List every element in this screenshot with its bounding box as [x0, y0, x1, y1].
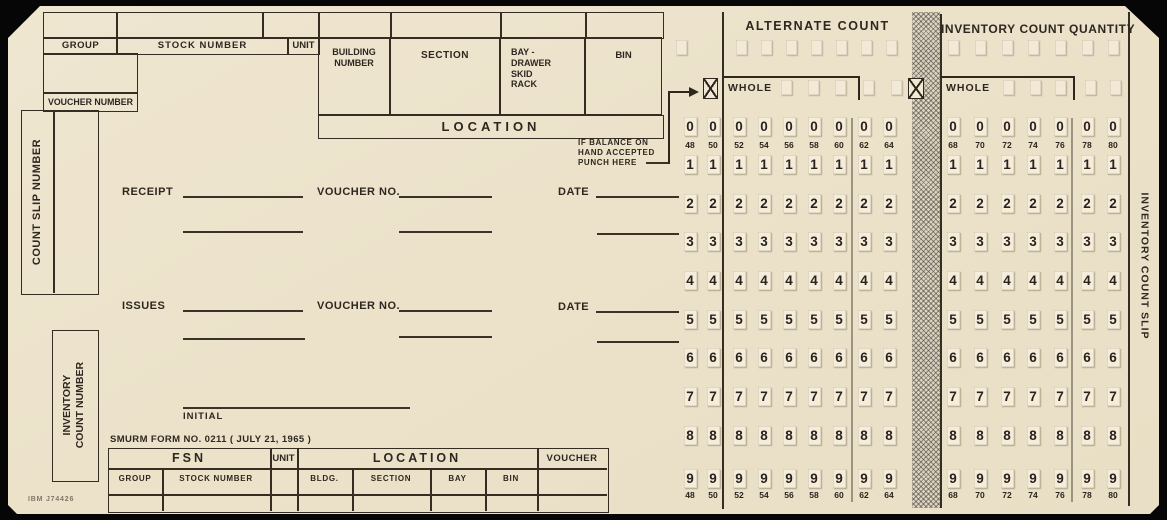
punch-digit-cell: 5: [947, 310, 960, 329]
punch-digit-cell: 1: [684, 155, 697, 174]
punch-digit-cell: 7: [1001, 387, 1014, 406]
punch-digit-cell: 4: [947, 271, 960, 290]
punch-box-empty: [811, 40, 822, 55]
punch-digit-cell: 2: [1027, 194, 1040, 213]
punch-digit-cell: 9: [974, 469, 987, 488]
punch-digit-cell: 0: [1001, 117, 1014, 136]
punch-digit-cell: 0: [758, 117, 771, 136]
punch-digit-cell: 7: [858, 387, 871, 406]
punch-digit-cell: 7: [733, 387, 746, 406]
punch-digit-cell: 3: [1027, 232, 1040, 251]
punch-digit-cell: 4: [833, 271, 846, 290]
punch-digit-cell: 6: [1027, 348, 1040, 367]
punch-digit-cell: 7: [684, 387, 697, 406]
punch-digit-cell: 1: [858, 155, 871, 174]
punch-digit-cell: 3: [733, 232, 746, 251]
punch-digit-cell: 2: [684, 194, 697, 213]
punch-box-empty: [886, 40, 897, 55]
punch-digit-cell: 9: [947, 469, 960, 488]
punch-column-number: 70: [971, 490, 989, 500]
punch-digit-cell: 9: [1107, 469, 1120, 488]
punch-digit-cell: 7: [1027, 387, 1040, 406]
punch-column-number: 68: [944, 490, 962, 500]
punch-column-number: 76: [1051, 490, 1069, 500]
punch-digit-cell: 5: [1001, 310, 1014, 329]
punch-box-empty: [836, 40, 847, 55]
punch-column-number: 74: [1024, 490, 1042, 500]
punch-column-number: 48: [681, 490, 699, 500]
punch-column-number: 68: [944, 140, 962, 150]
punch-box-empty: [861, 40, 872, 55]
punch-digit-cell: 1: [758, 155, 771, 174]
punch-digit-cell: 1: [1081, 155, 1094, 174]
punch-digit-cell: 2: [1107, 194, 1120, 213]
punch-digit-cell: 9: [808, 469, 821, 488]
punch-column-number: 60: [830, 490, 848, 500]
punch-digit-cell: 8: [1054, 426, 1067, 445]
punch-column-number: 56: [780, 490, 798, 500]
punch-digit-cell: 9: [733, 469, 746, 488]
punch-digit-cell: 0: [783, 117, 796, 136]
punch-digit-cell: 7: [833, 387, 846, 406]
punch-digit-cell: 2: [1081, 194, 1094, 213]
punch-digit-cell: 3: [758, 232, 771, 251]
punch-digit-cell: 7: [947, 387, 960, 406]
punch-box-empty: [1055, 80, 1066, 95]
punch-digit-cell: 4: [758, 271, 771, 290]
punch-digit-cell: 3: [808, 232, 821, 251]
punch-digit-cell: 5: [833, 310, 846, 329]
punch-digit-cell: 3: [1054, 232, 1067, 251]
punch-column-number: 62: [855, 490, 873, 500]
punch-digit-cell: 3: [707, 232, 720, 251]
punch-digit-cell: 7: [1107, 387, 1120, 406]
punch-digit-cell: 1: [947, 155, 960, 174]
punch-digit-cell: 7: [1081, 387, 1094, 406]
punch-digit-cell: 9: [758, 469, 771, 488]
punch-digit-cell: 4: [1107, 271, 1120, 290]
card-content: GROUP STOCK NUMBER UNIT BUILDING NUMBER …: [0, 0, 1167, 520]
punch-digit-cell: 0: [1107, 117, 1120, 136]
punch-box-empty: [761, 40, 772, 55]
punch-column-number: 54: [755, 140, 773, 150]
punch-digit-cell: 7: [707, 387, 720, 406]
punch-digit-cell: 3: [974, 232, 987, 251]
punch-digit-cell: 0: [858, 117, 871, 136]
punch-box-empty: [863, 80, 874, 95]
punch-digit-cell: 3: [1107, 232, 1120, 251]
punch-digit-cell: 0: [707, 117, 720, 136]
punch-digit-cell: 1: [833, 155, 846, 174]
punch-digit-cell: 9: [1001, 469, 1014, 488]
punch-card: GROUP STOCK NUMBER UNIT BUILDING NUMBER …: [8, 6, 1159, 514]
punch-digit-cell: 5: [783, 310, 796, 329]
punch-digit-cell: 2: [783, 194, 796, 213]
punch-digit-cell: 0: [883, 117, 896, 136]
punch-digit-cell: 5: [707, 310, 720, 329]
punch-digit-cell: 8: [783, 426, 796, 445]
punch-box-empty: [1085, 80, 1096, 95]
punch-digit-cell: 4: [883, 271, 896, 290]
punch-column-number: 72: [998, 490, 1016, 500]
punch-digit-cell: 1: [1001, 155, 1014, 174]
punch-digit-cell: 9: [858, 469, 871, 488]
punch-digit-cell: 3: [1081, 232, 1094, 251]
punch-digit-cell: 9: [883, 469, 896, 488]
punch-digit-cell: 0: [833, 117, 846, 136]
punch-digit-cell: 8: [947, 426, 960, 445]
punch-digit-cell: 6: [833, 348, 846, 367]
punch-digit-cell: 4: [733, 271, 746, 290]
punch-digit-cell: 1: [1027, 155, 1040, 174]
punch-digit-cell: 1: [733, 155, 746, 174]
punch-digit-cell: 0: [974, 117, 987, 136]
punch-digit-cell: 6: [808, 348, 821, 367]
punch-column-number: 80: [1104, 490, 1122, 500]
punch-column-number: 58: [805, 490, 823, 500]
punch-digit-cell: 8: [883, 426, 896, 445]
punch-digit-cell: 5: [733, 310, 746, 329]
punch-column-number: 52: [730, 490, 748, 500]
punch-digit-cell: 6: [707, 348, 720, 367]
punch-digit-cell: 0: [808, 117, 821, 136]
punch-digit-cell: 5: [808, 310, 821, 329]
punch-digit-cell: 8: [1107, 426, 1120, 445]
punch-box-empty: [1003, 80, 1014, 95]
punch-digit-cell: 5: [684, 310, 697, 329]
punch-digit-cell: 2: [858, 194, 871, 213]
punch-digit-cell: 2: [733, 194, 746, 213]
punch-column-number: 54: [755, 490, 773, 500]
punch-column-number: 80: [1104, 140, 1122, 150]
punch-digit-cell: 2: [758, 194, 771, 213]
punch-digit-cell: 2: [808, 194, 821, 213]
punch-digit-cell: 0: [684, 117, 697, 136]
punch-digit-cell: 1: [1054, 155, 1067, 174]
punch-box-empty: [835, 80, 846, 95]
punch-digit-cell: 4: [684, 271, 697, 290]
punch-digit-cell: 2: [883, 194, 896, 213]
punch-digit-cell: 9: [684, 469, 697, 488]
punch-column-number: 48: [681, 140, 699, 150]
punch-digit-cell: 6: [858, 348, 871, 367]
punch-digit-cell: 3: [858, 232, 871, 251]
punch-digit-cell: 3: [833, 232, 846, 251]
punch-box-empty: [948, 40, 959, 55]
punch-digit-cell: 1: [883, 155, 896, 174]
punch-box-empty: [786, 40, 797, 55]
punch-digit-cell: 8: [858, 426, 871, 445]
punch-digit-cell: 7: [974, 387, 987, 406]
punch-digit-cell: 9: [783, 469, 796, 488]
punch-digit-cell: 0: [1054, 117, 1067, 136]
punch-digit-cell: 5: [974, 310, 987, 329]
punch-digit-cell: 6: [974, 348, 987, 367]
punch-column-number: 60: [830, 140, 848, 150]
punch-digit-cell: 8: [758, 426, 771, 445]
punch-digit-cell: 9: [833, 469, 846, 488]
punch-digit-cell: 8: [733, 426, 746, 445]
punch-digit-cell: 4: [1027, 271, 1040, 290]
punch-column-number: 78: [1078, 140, 1096, 150]
punch-digit-cell: 9: [1081, 469, 1094, 488]
punch-column-number: 78: [1078, 490, 1096, 500]
punch-digit-cell: 7: [1054, 387, 1067, 406]
punch-digit-cell: 6: [1054, 348, 1067, 367]
punch-digit-cell: 7: [783, 387, 796, 406]
punch-column-number: 50: [704, 140, 722, 150]
punch-digit-cell: 5: [758, 310, 771, 329]
punch-digit-cell: 2: [947, 194, 960, 213]
punch-digit-cell: 5: [1081, 310, 1094, 329]
punch-digit-cell: 6: [1107, 348, 1120, 367]
punch-digit-cell: 3: [947, 232, 960, 251]
punch-digit-cell: 2: [833, 194, 846, 213]
punch-column-number: 74: [1024, 140, 1042, 150]
punch-digit-cell: 6: [733, 348, 746, 367]
punch-column-number: 58: [805, 140, 823, 150]
punch-digit-cell: 2: [1001, 194, 1014, 213]
punch-digit-cell: 6: [684, 348, 697, 367]
punch-digit-cell: 8: [1027, 426, 1040, 445]
punch-digit-cell: 6: [1081, 348, 1094, 367]
punch-digit-cell: 8: [974, 426, 987, 445]
punch-digit-cell: 6: [947, 348, 960, 367]
punch-digit-cell: 6: [758, 348, 771, 367]
punch-column-number: 72: [998, 140, 1016, 150]
punch-box-empty: [1055, 40, 1066, 55]
punch-box-empty: [1030, 80, 1041, 95]
punch-digit-cell: 9: [707, 469, 720, 488]
punch-digit-cell: 5: [883, 310, 896, 329]
punch-column-number: 50: [704, 490, 722, 500]
punch-digit-cell: 0: [1081, 117, 1094, 136]
punch-column-number: 52: [730, 140, 748, 150]
punch-digit-cell: 5: [858, 310, 871, 329]
punch-digit-cell: 7: [758, 387, 771, 406]
punch-box-empty: [975, 40, 986, 55]
punch-digit-cell: 8: [707, 426, 720, 445]
punch-digit-grid: 0000000000000000111111111111111122222222…: [0, 0, 1167, 520]
punch-box-empty: [1082, 40, 1093, 55]
punch-box-empty: [676, 40, 687, 55]
punch-box-empty: [781, 80, 792, 95]
punch-digit-cell: 4: [858, 271, 871, 290]
punch-digit-cell: 5: [1027, 310, 1040, 329]
punch-digit-cell: 8: [1001, 426, 1014, 445]
punch-box-empty: [1110, 80, 1121, 95]
punch-column-number: 70: [971, 140, 989, 150]
punch-column-number: 76: [1051, 140, 1069, 150]
punch-digit-cell: 5: [1107, 310, 1120, 329]
punch-digit-cell: 4: [1054, 271, 1067, 290]
punch-box-empty: [891, 80, 902, 95]
punch-digit-cell: 0: [733, 117, 746, 136]
punch-digit-cell: 6: [883, 348, 896, 367]
punch-column-number: 64: [880, 490, 898, 500]
punch-digit-cell: 7: [883, 387, 896, 406]
punch-digit-cell: 1: [974, 155, 987, 174]
punch-digit-cell: 9: [1054, 469, 1067, 488]
scanned-punch-card-screenshot: GROUP STOCK NUMBER UNIT BUILDING NUMBER …: [0, 0, 1167, 520]
punch-digit-cell: 4: [808, 271, 821, 290]
punch-digit-cell: 7: [808, 387, 821, 406]
punch-digit-cell: 0: [947, 117, 960, 136]
punch-column-number: 62: [855, 140, 873, 150]
punch-digit-cell: 9: [1027, 469, 1040, 488]
punch-digit-cell: 4: [1001, 271, 1014, 290]
punch-digit-cell: 1: [783, 155, 796, 174]
punch-digit-cell: 6: [783, 348, 796, 367]
punch-digit-cell: 2: [974, 194, 987, 213]
punch-box-empty: [1002, 40, 1013, 55]
punch-digit-cell: 3: [684, 232, 697, 251]
punch-digit-cell: 3: [783, 232, 796, 251]
punch-digit-cell: 0: [1027, 117, 1040, 136]
punch-digit-cell: 4: [783, 271, 796, 290]
punch-digit-cell: 1: [1107, 155, 1120, 174]
punch-column-number: 64: [880, 140, 898, 150]
punch-digit-cell: 4: [1081, 271, 1094, 290]
punch-digit-cell: 8: [1081, 426, 1094, 445]
punch-box-empty: [1108, 40, 1119, 55]
punch-digit-cell: 2: [1054, 194, 1067, 213]
punch-digit-cell: 6: [1001, 348, 1014, 367]
punch-digit-cell: 5: [1054, 310, 1067, 329]
punch-digit-cell: 3: [883, 232, 896, 251]
punch-digit-cell: 1: [707, 155, 720, 174]
punch-digit-cell: 8: [684, 426, 697, 445]
punch-digit-cell: 2: [707, 194, 720, 213]
punch-box-empty: [736, 40, 747, 55]
punch-digit-cell: 4: [974, 271, 987, 290]
punch-box-empty: [1028, 40, 1039, 55]
punch-digit-cell: 8: [833, 426, 846, 445]
punch-digit-cell: 4: [707, 271, 720, 290]
punch-digit-cell: 1: [808, 155, 821, 174]
punch-digit-cell: 3: [1001, 232, 1014, 251]
punch-column-number: 56: [780, 140, 798, 150]
punch-digit-cell: 8: [808, 426, 821, 445]
punch-box-empty: [808, 80, 819, 95]
